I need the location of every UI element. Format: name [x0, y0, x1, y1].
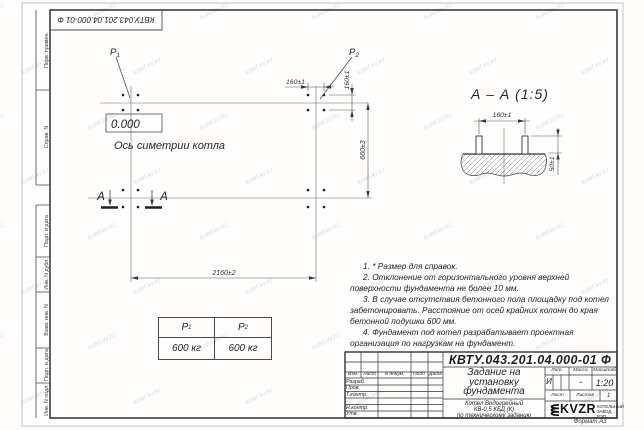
strip-label-1: Перв. примен. — [44, 32, 50, 68]
anchor-bolt-right — [522, 136, 528, 154]
note-3: 3. В случае отсутствия бетонного пола пл… — [350, 294, 613, 327]
strip-label-3: Подп. и дата — [44, 215, 50, 247]
sheets-label: Листов — [570, 393, 600, 399]
strip-label-5: Взам. инв. N — [44, 304, 50, 336]
anchor-bolt-left — [476, 136, 482, 154]
scale-value: 1:20 — [592, 378, 617, 388]
notes: 1. * Размер для справок. 2. Отклонение о… — [350, 261, 613, 349]
drawing-sheet: kotel-kv.kzkotel-kv.kzkotel-kv.kzkotel-k… — [0, 0, 644, 430]
titleblock-doc-number: КВТУ.043.201.04.000-01 Ф — [443, 353, 617, 368]
strip-label-7: Инв. N подл. — [44, 384, 50, 416]
change-col-doc: N докум. — [378, 372, 411, 378]
section-cut-marks: А А — [96, 190, 168, 208]
dim-160-h-label: 160±1 — [286, 79, 305, 86]
dim-660-label: 660±3 — [360, 140, 367, 160]
format-label: Формат А3 — [558, 419, 622, 425]
lit-value: И — [545, 377, 553, 386]
strip-label-2: Справ. N — [44, 126, 50, 149]
load-point-1-label: P1 — [110, 47, 120, 59]
load-table-value-p1: 600 кг — [159, 338, 215, 359]
elevation-value: 0.000 — [111, 119, 140, 131]
section-letter-right: А — [159, 191, 168, 203]
strip-label-4: Инв. N дубл. — [44, 258, 50, 290]
elevation-mark: 0.000 — [106, 114, 162, 132]
note-4: 4. Фундамент под котел разрабатывает про… — [350, 327, 613, 349]
load-table: P1 P2 600 кг 600 кг — [158, 317, 272, 360]
concrete-foundation — [461, 154, 546, 176]
top-stamp: КВТУ.043.201.04.000-01 Ф — [50, 10, 162, 30]
section-dim-160-label: 160±1 — [493, 112, 512, 119]
section-letter-left: А — [96, 191, 105, 203]
p2-sub: 2 — [354, 52, 359, 59]
dim-160-horizontal: 160±1 — [285, 79, 334, 91]
org-name: КОТЕЛЬНЫЙ ЗАВОД РЭП — [597, 404, 619, 419]
titleblock-subtitle-line3: по техническому заданию — [443, 413, 545, 419]
sign-row-utv: Утв. — [346, 411, 377, 418]
dim-160-vertical: 160±1 — [329, 70, 356, 121]
dim-2160-label: 2160±2 — [211, 270, 235, 277]
section-view — [461, 128, 546, 184]
note-2: 2. Отклонение от горизонтального уровня … — [350, 272, 613, 294]
dim-660: 660±3 — [360, 103, 370, 198]
mass-value: - — [569, 377, 592, 387]
org-line-2: ЗАВОД РЭП — [597, 409, 619, 419]
sheets-value: 1 — [600, 393, 617, 399]
kvzr-logo-text: KVZR — [560, 402, 598, 416]
scale-header: Масштаб — [592, 368, 617, 374]
dim-160-v-label: 160±1 — [344, 70, 351, 89]
change-col-list: Лист — [361, 372, 378, 378]
load-point-2-label: P2 — [349, 47, 359, 59]
dim-2160: 2160±2 — [131, 270, 316, 280]
symmetry-axis-label: Ось симетрии котла — [114, 140, 225, 152]
p1-sub: 1 — [116, 52, 120, 59]
top-stamp-number: КВТУ.043.201.04.000-01 Ф — [57, 15, 155, 24]
load-table-header-p2: P2 — [215, 318, 271, 338]
kvzr-logo-icon — [552, 405, 560, 415]
change-col-podp: Подп. — [411, 372, 428, 378]
change-col-izm: Изм. — [345, 372, 361, 378]
change-col-data: Дата — [428, 372, 443, 378]
load-leaders — [116, 57, 352, 99]
titleblock-title-line3: фундамента — [443, 387, 545, 396]
titleblock-title-line1: Задание на — [443, 368, 545, 377]
mass-header: Масса — [569, 368, 592, 374]
load-table-value-p2: 600 кг — [215, 338, 271, 359]
section-dim-160: 160±1 — [474, 112, 530, 134]
section-view-title: А – А (1:5) — [470, 86, 549, 102]
plan-axes — [88, 86, 372, 282]
strip-label-6: Подп. и дата — [44, 349, 50, 381]
load-table-header-p1: P1 — [159, 318, 215, 338]
section-dim-50-label: 50±1 — [549, 156, 556, 171]
note-1: 1. * Размер для справок. — [350, 261, 613, 272]
lit-header: Лит. — [545, 368, 569, 374]
sheet-label: Лист — [545, 393, 570, 399]
